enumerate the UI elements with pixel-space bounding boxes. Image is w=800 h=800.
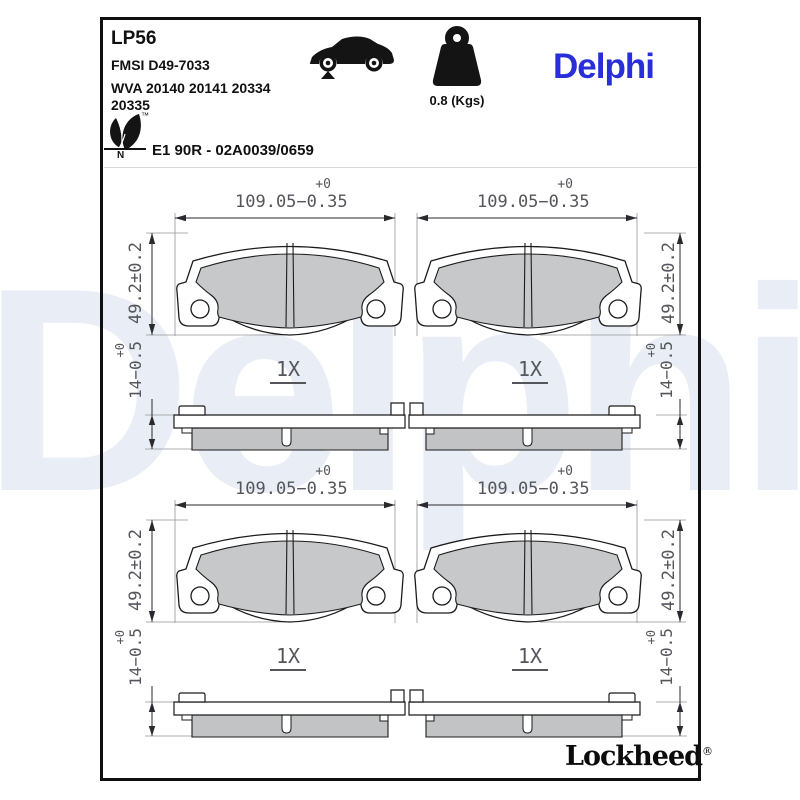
header-separator bbox=[104, 167, 697, 169]
part-number: LP56 bbox=[111, 28, 156, 50]
width-value: 109.05−0.35 bbox=[477, 192, 589, 212]
eco-baseline bbox=[104, 148, 146, 150]
eco-letter: N bbox=[117, 150, 124, 161]
lockheed-logo: Lockheed® bbox=[565, 741, 695, 772]
thickness-dim-bottom-left: +0 14−0.5 bbox=[113, 624, 147, 690]
width-tolerance: +0 bbox=[477, 464, 589, 479]
width-dim-top-left: +0 109.05−0.35 bbox=[235, 177, 347, 212]
width-dim-bottom-left: +0 109.05−0.35 bbox=[235, 464, 347, 499]
height-dim-top-left: 49.2±0.2 bbox=[126, 232, 146, 334]
weight-icon bbox=[430, 26, 484, 92]
height-dim-bottom-right: 49.2±0.2 bbox=[659, 519, 679, 621]
quantity-label-top-right: 1X bbox=[512, 357, 548, 384]
car-front-axle-icon bbox=[306, 33, 398, 79]
thickness-value: 14−0.5 bbox=[127, 337, 145, 403]
width-value: 109.05−0.35 bbox=[235, 479, 347, 499]
thickness-value: 14−0.5 bbox=[658, 624, 676, 690]
width-tolerance: +0 bbox=[235, 177, 347, 192]
registered-symbol: ® bbox=[702, 745, 712, 758]
approval-number: E1 90R - 02A0039/0659 bbox=[152, 142, 314, 159]
axle-position-arrow bbox=[321, 71, 335, 79]
weight-value: 0.8 (Kgs) bbox=[414, 93, 500, 108]
width-dim-top-right: +0 109.05−0.35 bbox=[477, 177, 589, 212]
width-tolerance: +0 bbox=[477, 177, 589, 192]
thickness-tolerance: +0 bbox=[113, 337, 127, 403]
width-tolerance: +0 bbox=[235, 464, 347, 479]
width-dim-bottom-right: +0 109.05−0.35 bbox=[477, 464, 589, 499]
height-dim-bottom-left: 49.2±0.2 bbox=[126, 519, 146, 621]
thickness-value: 14−0.5 bbox=[127, 624, 145, 690]
thickness-tolerance: +0 bbox=[644, 337, 658, 403]
thickness-dim-top-left: +0 14−0.5 bbox=[113, 337, 147, 403]
width-value: 109.05−0.35 bbox=[477, 479, 589, 499]
delphi-logo: Delphi bbox=[553, 47, 654, 87]
catalog-page: Delphi bbox=[0, 0, 800, 800]
thickness-tolerance: +0 bbox=[113, 624, 127, 690]
wva-reference: WVA 20140 20141 20334 20335 bbox=[111, 80, 341, 114]
thickness-tolerance: +0 bbox=[644, 624, 658, 690]
height-dim-top-right: 49.2±0.2 bbox=[659, 232, 679, 334]
thickness-dim-bottom-right: +0 14−0.5 bbox=[644, 624, 678, 690]
lockheed-wordmark: Lockheed bbox=[565, 741, 702, 772]
quantity-label-bottom-left: 1X bbox=[270, 644, 306, 671]
thickness-value: 14−0.5 bbox=[658, 337, 676, 403]
width-value: 109.05−0.35 bbox=[235, 192, 347, 212]
quantity-label-bottom-right: 1X bbox=[512, 644, 548, 671]
quantity-label-top-left: 1X bbox=[270, 357, 306, 384]
trademark-symbol: ™ bbox=[141, 111, 149, 120]
thickness-dim-top-right: +0 14−0.5 bbox=[644, 337, 678, 403]
fmsi-reference: FMSI D49-7033 bbox=[111, 57, 210, 73]
